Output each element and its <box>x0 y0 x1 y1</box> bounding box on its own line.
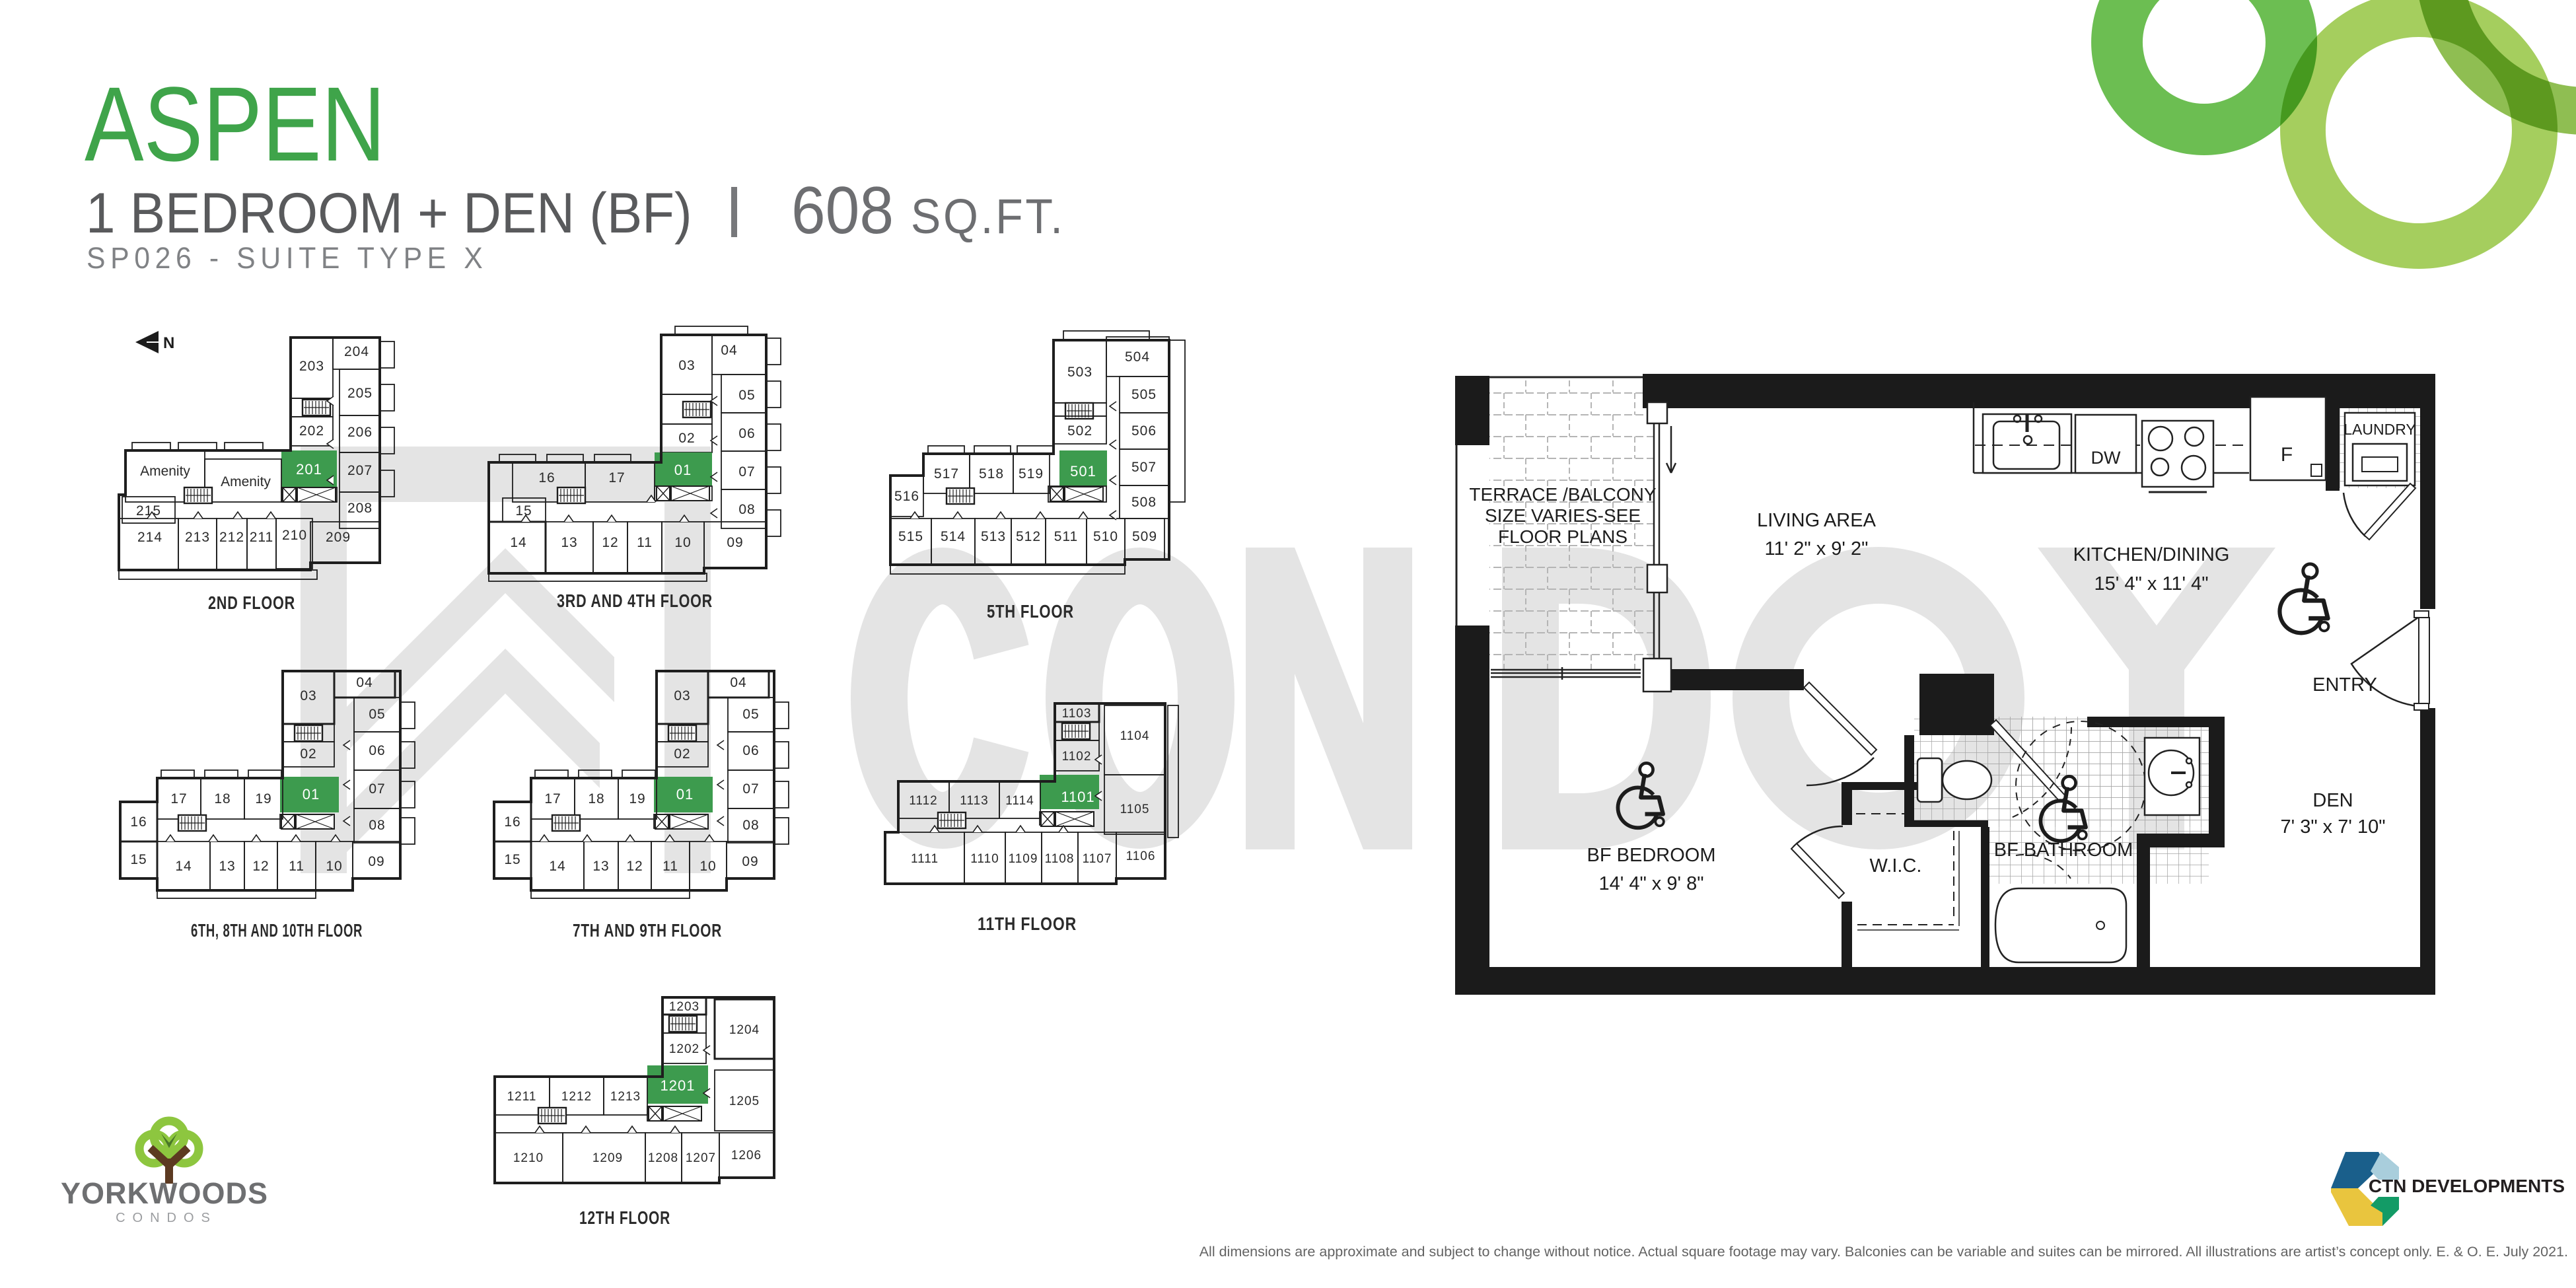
svg-text:YORKWOODS: YORKWOODS <box>61 1176 268 1210</box>
svg-text:CTN DEVELOPMENTS: CTN DEVELOPMENTS <box>2369 1176 2565 1196</box>
svg-text:CONDOS: CONDOS <box>116 1211 217 1225</box>
svg-text:All dimensions are approximate: All dimensions are approximate and subje… <box>1199 1244 2568 1260</box>
